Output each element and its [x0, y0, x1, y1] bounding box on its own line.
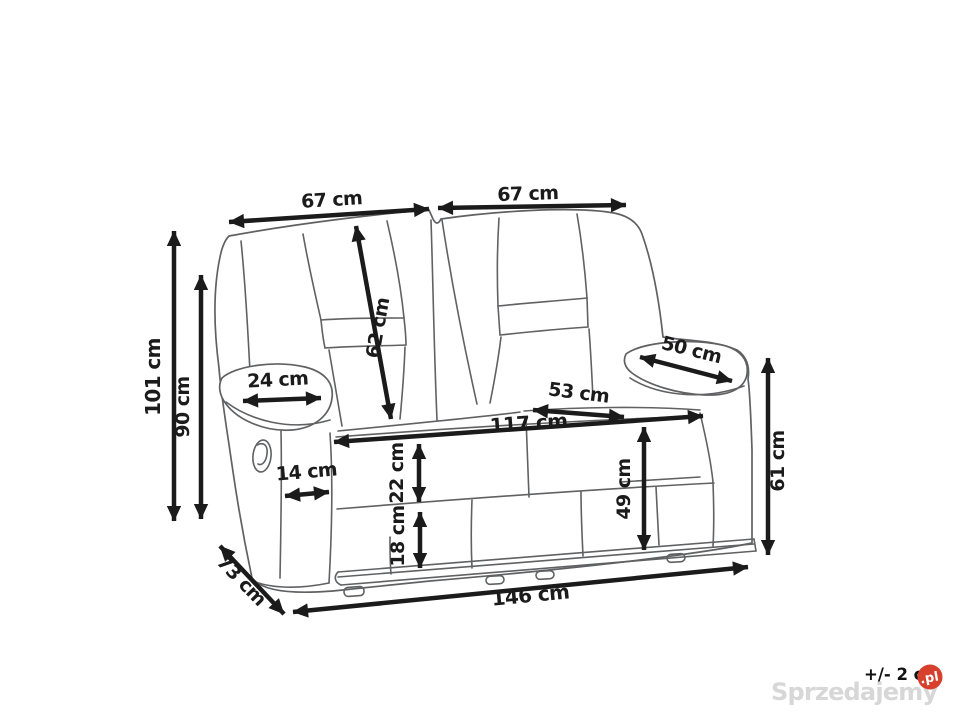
dimension-label: 90 cm [172, 376, 194, 437]
dimension-label: 61 cm [767, 430, 789, 491]
brand-badge-label: .pl [919, 670, 940, 688]
dimension-label: 67 cm [497, 182, 559, 206]
diagram-canvas: 67 cm 67 cm 101 cm 90 cm 62 cm 24 cm 50 … [0, 0, 960, 720]
dimension-label: 146 cm [490, 579, 570, 610]
tolerance-note: +/- 2 c [864, 665, 923, 684]
watermark: Sprzedajemy +/- 2 c .pl [771, 665, 943, 707]
dimension-total-height: 101 cm [141, 231, 174, 521]
dimension-diagram: 67 cm 67 cm 101 cm 90 cm 62 cm 24 cm 50 … [0, 0, 960, 720]
dimension-label: 67 cm [300, 187, 362, 213]
dimension-label: 101 cm [141, 338, 165, 416]
sofa-foot [486, 575, 505, 584]
dimension-label: 24 cm [247, 367, 309, 392]
dimension-backrest-height: 90 cm [172, 275, 201, 519]
sofa-drawing [215, 210, 756, 597]
dimension-label: 49 cm [613, 458, 635, 519]
dimension-label: 22 cm [386, 442, 408, 503]
sofa-foot [536, 570, 555, 579]
dimension-armrest-height: 61 cm [767, 358, 789, 555]
dimension-back-right-width: 67 cm [438, 182, 626, 208]
dimension-label: 18 cm [387, 505, 409, 566]
